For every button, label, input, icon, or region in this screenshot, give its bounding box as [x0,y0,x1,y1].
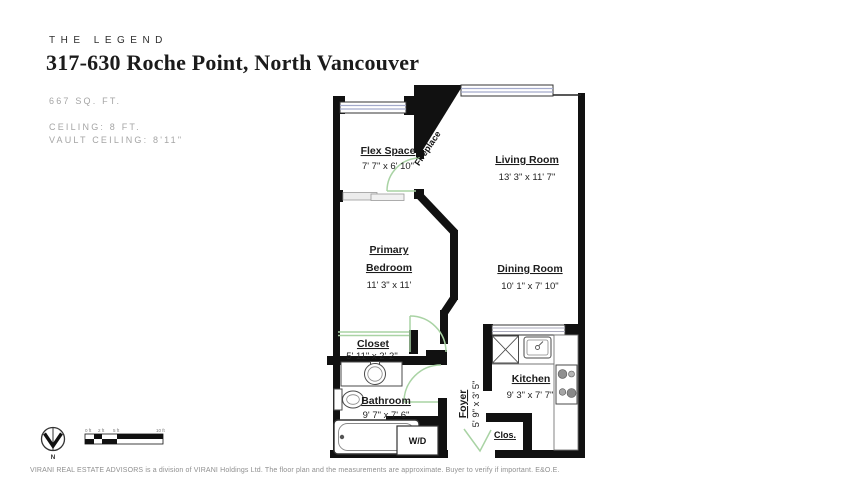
svg-text:Dining Room: Dining Room [497,263,562,275]
room-label-living-room: Living Room 13' 3" x 11' 7" [495,154,559,183]
closet-sliding-door [338,332,409,336]
room-label-foyer: Foyer 5' 9" x 3' 5" [457,381,482,428]
svg-text:Foyer: Foyer [457,390,469,419]
svg-text:13' 3" x 11' 7": 13' 3" x 11' 7" [499,172,556,183]
svg-text:Closet: Closet [357,338,390,350]
washer-dryer-label: W/D [409,436,427,446]
toilet [334,389,364,410]
top-right-step-wall [552,85,581,95]
vault-ceiling-line: VAULT CEILING: 8'11" [49,134,183,147]
svg-text:5' 9" x 3' 5": 5' 9" x 3' 5" [471,381,482,428]
svg-text:Kitchen: Kitchen [512,373,551,385]
scale-bar: 0 ft 2 ft 5 ft 10 ft [84,426,168,448]
svg-text:5' 11" x 2' 2": 5' 11" x 2' 2" [346,351,397,362]
room-label-flex-space: Flex Space 7' 7" x 6' 10" [361,145,416,172]
svg-text:Flex Space: Flex Space [361,145,416,157]
svg-text:10 ft: 10 ft [156,428,166,433]
svg-text:Primary: Primary [369,244,408,256]
room-label-closet: Closet 5' 11" x 2' 2" [346,338,397,362]
small-closet-label: Clos. [494,430,516,440]
compass-icon: N [35,423,71,465]
svg-text:9' 3" x 7' 7": 9' 3" x 7' 7" [507,390,554,401]
flex-slider-partition [343,193,404,201]
disclaimer-text: VIRANI REAL ESTATE ADVISORS is a divisio… [30,467,610,474]
svg-text:9' 7" x 7' 6": 9' 7" x 7' 6" [363,410,410,421]
living-window [461,85,553,96]
svg-text:Bedroom: Bedroom [366,262,412,274]
kitchen-sink [524,337,551,358]
room-label-dining-room: Dining Room 10' 1" x 7' 10" [497,263,562,292]
floor-plan: Flex Space 7' 7" x 6' 10" Living Room 13… [325,80,597,472]
room-label-kitchen: Kitchen 9' 3" x 7' 7" [507,373,554,401]
svg-text:7' 7" x 6' 10": 7' 7" x 6' 10" [362,161,414,172]
area-text: 667 SQ. FT. [49,96,121,106]
room-label-primary-bedroom: Primary Bedroom 11' 3" x 11' [366,244,412,291]
svg-text:Bathroom: Bathroom [361,395,411,407]
diagonal-walls [419,195,455,313]
svg-text:Living Room: Living Room [495,154,559,166]
svg-text:N: N [51,454,56,461]
page-title: 317-630 Roche Point, North Vancouver [46,50,419,76]
brand-name: THE LEGEND [49,35,168,46]
room-label-bathroom: Bathroom 9' 7" x 7' 6" [361,395,411,421]
fireplace [414,85,463,153]
svg-text:2 ft: 2 ft [98,428,105,433]
kitchen-passthrough-window [492,325,565,335]
dishwasher [493,336,519,363]
svg-text:0 ft: 0 ft [85,428,92,433]
ceiling-info: CEILING: 8 FT. VAULT CEILING: 8'11" [49,121,183,147]
ceiling-line: CEILING: 8 FT. [49,121,183,134]
svg-text:10' 1" x 7' 10": 10' 1" x 7' 10" [501,281,558,292]
entry-door [464,429,491,451]
stove [556,365,577,404]
svg-text:5 ft: 5 ft [113,428,120,433]
floorplan-page: THE LEGEND 317-630 Roche Point, North Va… [0,0,867,500]
svg-text:11' 3" x 11': 11' 3" x 11' [367,280,412,291]
flex-window [340,102,406,113]
